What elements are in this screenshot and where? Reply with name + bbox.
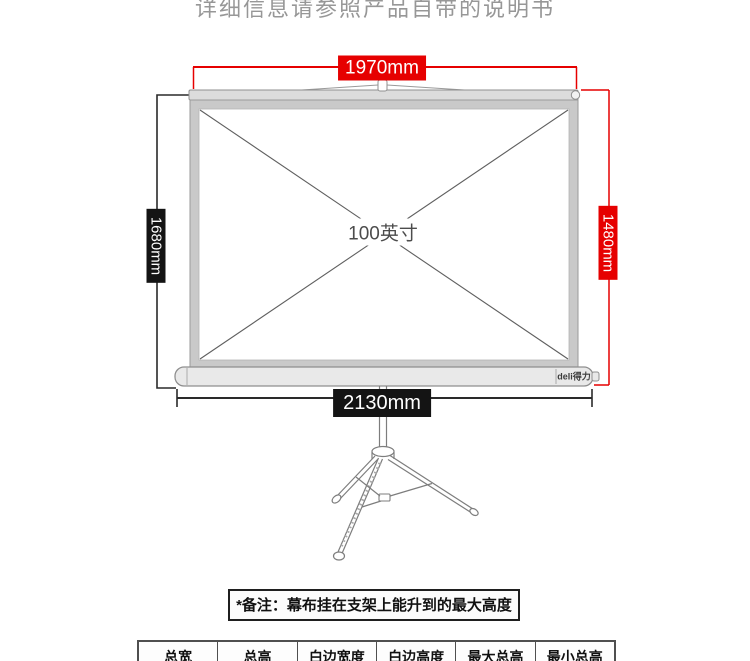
spec-col-min-total-height: 最小总高 xyxy=(535,642,614,661)
product-detail-image: 详细信息请参照产品自带的说明书 xyxy=(0,0,750,661)
screen-diagram-art xyxy=(0,0,750,661)
spec-col-white-border-width: 白边宽度 xyxy=(297,642,376,661)
brand-logo: deli得力 xyxy=(557,370,591,383)
screen-top-bar xyxy=(189,80,580,100)
dimension-label-left-height: 1680mm xyxy=(147,209,166,283)
dimension-label-top-width: 1970mm xyxy=(338,56,426,81)
spec-col-white-border-height: 白边高度 xyxy=(376,642,455,661)
dimension-label-right-height: 1480mm xyxy=(599,206,618,280)
spec-col-max-total-height: 最大总高 xyxy=(455,642,534,661)
screen-size-label: 100英寸 xyxy=(342,219,424,246)
note-box: *备注：幕布挂在支架上能升到的最大高度 xyxy=(228,589,520,621)
spec-col-total-width: 总宽 xyxy=(139,642,217,661)
spec-col-total-height: 总高 xyxy=(217,642,296,661)
screen-bottom-case xyxy=(175,367,599,386)
dimension-label-bottom-width: 2130mm xyxy=(333,389,431,417)
note-text: *备注：幕布挂在支架上能升到的最大高度 xyxy=(236,597,512,614)
spec-table: 总宽 总高 白边宽度 白边高度 最大总高 最小总高 xyxy=(137,640,616,661)
